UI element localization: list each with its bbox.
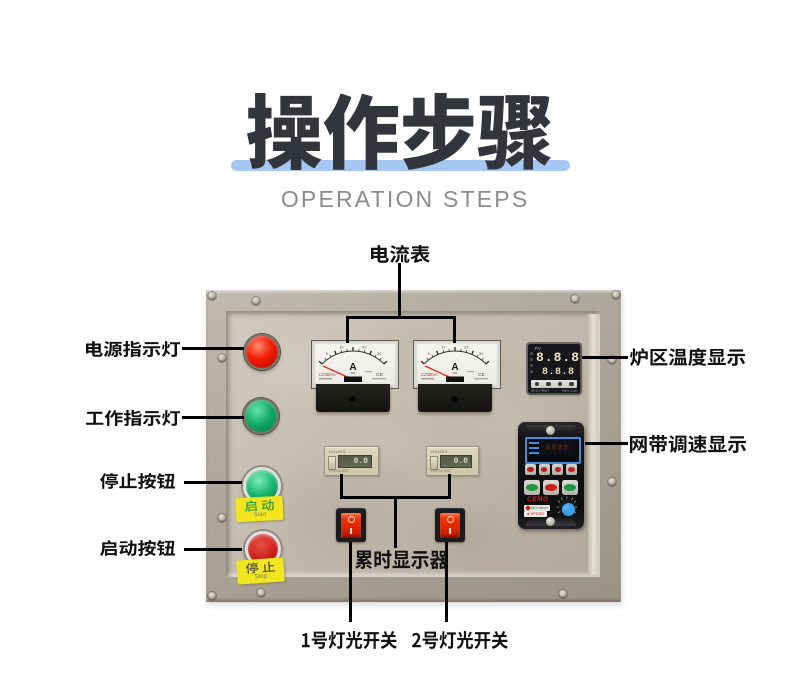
svg-text:30: 30	[479, 351, 484, 356]
svg-text:CZ30mA: CZ30mA	[319, 372, 336, 377]
svg-text:0: 0	[428, 351, 431, 356]
svg-text:20: 20	[464, 345, 469, 350]
svg-text:CE: CE	[376, 372, 383, 378]
svg-text:10: 10	[441, 345, 446, 350]
svg-text:10: 10	[339, 345, 344, 350]
svg-text:0: 0	[326, 351, 329, 356]
svg-text:CZ30mA: CZ30mA	[421, 372, 438, 377]
svg-text:20: 20	[362, 345, 367, 350]
svg-text:30: 30	[377, 351, 382, 356]
svg-text:CE: CE	[478, 372, 485, 378]
